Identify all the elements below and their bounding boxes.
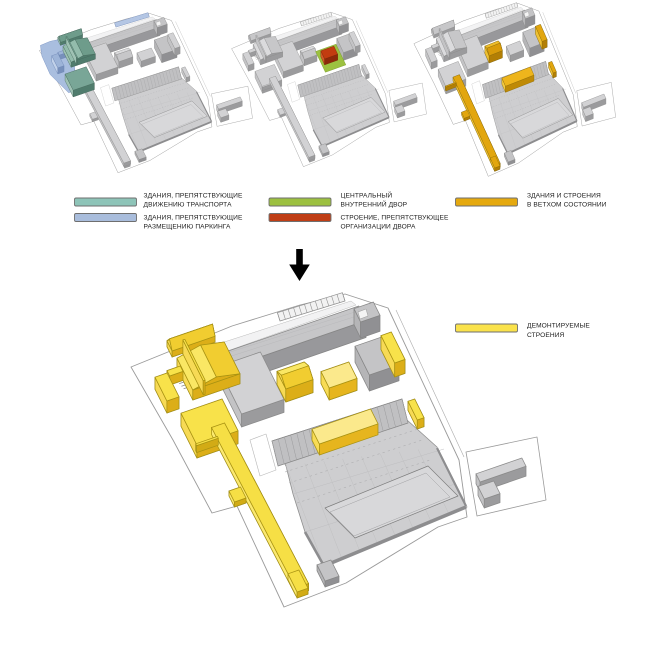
svg-text:ЗДАНИЯ И СТРОЕНИЯ: ЗДАНИЯ И СТРОЕНИЯ xyxy=(527,193,601,200)
svg-text:В ВЕТХОМ СОСТОЯНИИ: В ВЕТХОМ СОСТОЯНИИ xyxy=(527,202,607,209)
svg-text:РАЗМЕЩЕНИЮ ПАРКИНГА: РАЗМЕЩЕНИЮ ПАРКИНГА xyxy=(144,224,232,231)
svg-text:СТРОЕНИЯ: СТРОЕНИЯ xyxy=(527,332,565,339)
svg-text:ЗДАНИЯ, ПРЕПЯТСТВУЮЩИЕ: ЗДАНИЯ, ПРЕПЯТСТВУЮЩИЕ xyxy=(144,193,243,200)
svg-text:ЗДАНИЯ, ПРЕПЯТСТВУЮЩИЕ: ЗДАНИЯ, ПРЕПЯТСТВУЮЩИЕ xyxy=(144,215,243,222)
svg-text:ОРГАНИЗАЦИИ ДВОРА: ОРГАНИЗАЦИИ ДВОРА xyxy=(341,224,416,231)
svg-text:ДЕМОНТИРУЕМЫЕ: ДЕМОНТИРУЕМЫЕ xyxy=(527,323,590,330)
svg-text:СТРОЕНИЕ, ПРЕПЯТСТВУЮЩЕЕ: СТРОЕНИЕ, ПРЕПЯТСТВУЮЩЕЕ xyxy=(341,215,449,222)
svg-text:ЦЕНТРАЛЬНЫЙ: ЦЕНТРАЛЬНЫЙ xyxy=(341,191,393,200)
svg-text:ВНУТРЕННИЙ ДВОР: ВНУТРЕННИЙ ДВОР xyxy=(341,200,408,209)
svg-text:ДВИЖЕНИЮ ТРАНСПОРТА: ДВИЖЕНИЮ ТРАНСПОРТА xyxy=(144,202,233,209)
